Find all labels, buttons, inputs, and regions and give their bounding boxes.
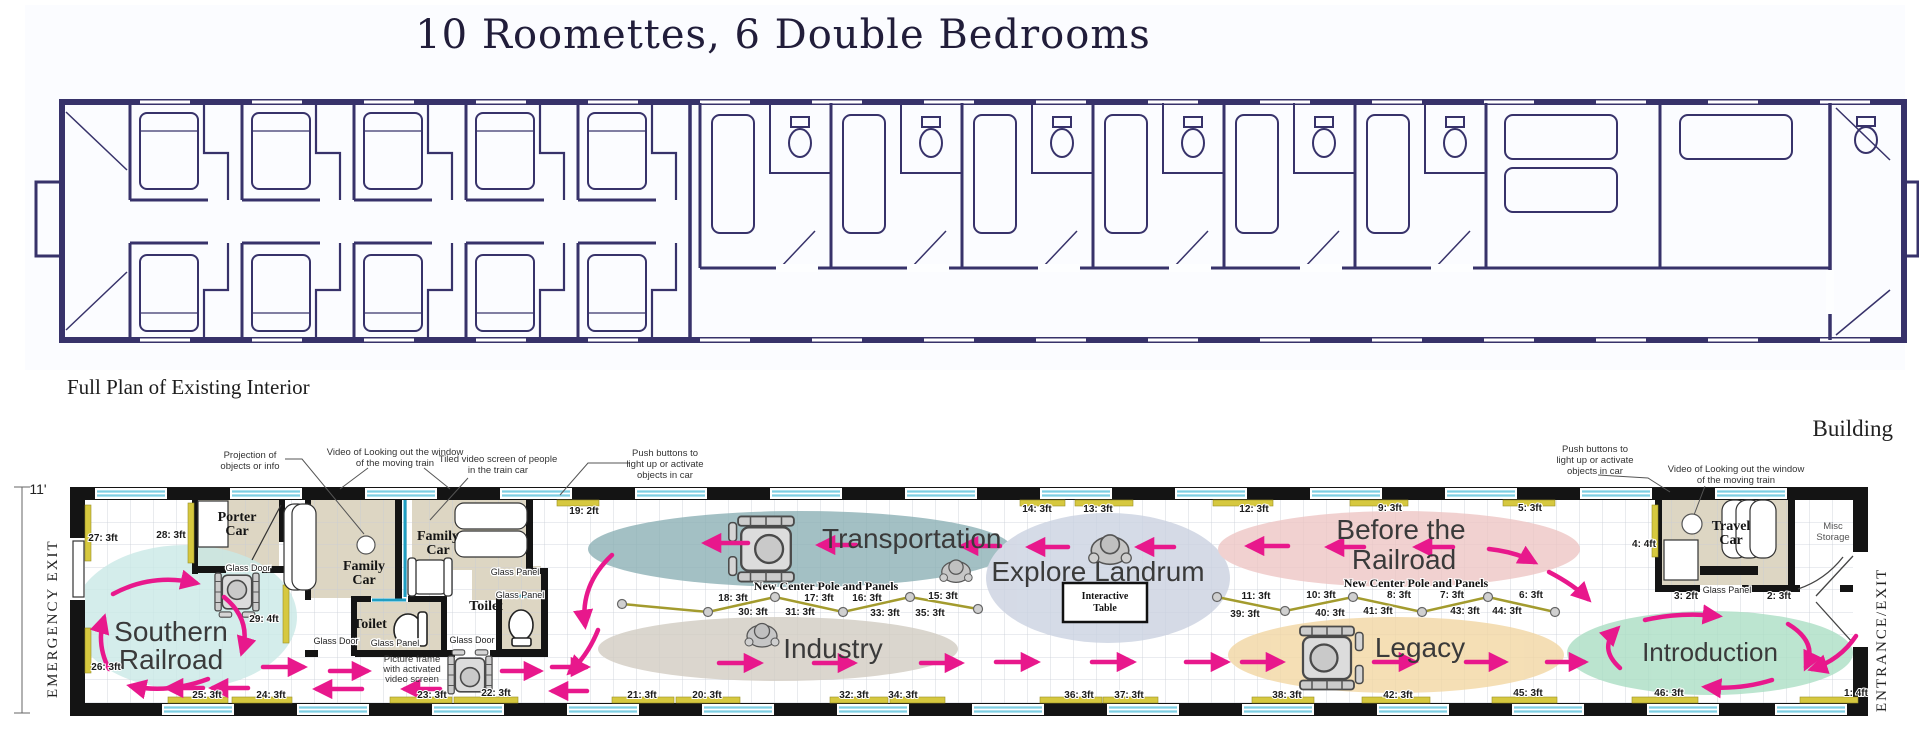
glass-door-label: Glass Door <box>313 636 358 646</box>
measurement-31: 31: 3ft <box>785 607 815 618</box>
train-car-plans: 10 Roomettes, 6 Double Bedrooms Full Pla… <box>0 0 1919 739</box>
height-dimension-line <box>14 487 30 713</box>
measurement-4: 4: 4ft <box>1632 539 1657 550</box>
measurement-16: 16: 3ft <box>852 593 882 604</box>
measurement-28: 28: 3ft <box>156 530 186 541</box>
measurement-23: 23: 3ft <box>417 690 447 701</box>
measurement-33: 33: 3ft <box>870 608 900 619</box>
zone-label-southern: Southern <box>114 616 228 647</box>
svg-text:of the moving train: of the moving train <box>1697 475 1775 486</box>
armchair <box>408 558 452 596</box>
porter-car-label: Porter <box>218 510 257 525</box>
projection-point <box>357 536 375 554</box>
zone-label-transportation: Transportation <box>822 523 1002 554</box>
center-pole-label: New Center Pole and Panels <box>1344 576 1489 590</box>
glass-panel-label: Glass Panel <box>371 638 420 648</box>
building-label: Building <box>1812 416 1893 441</box>
measurement-30: 30: 3ft <box>738 607 768 618</box>
svg-text:Interactive: Interactive <box>1082 591 1129 602</box>
svg-text:Car: Car <box>225 524 248 539</box>
svg-text:objects in car: objects in car <box>1567 466 1623 477</box>
glass-door-label: Glass Door <box>225 563 270 573</box>
entrance-door <box>1853 552 1868 647</box>
glass-panel-label: Glass Panel <box>496 590 545 600</box>
svg-text:of the moving train: of the moving train <box>356 458 434 469</box>
measurement-19: 19: 2ft <box>569 506 599 517</box>
zone-label-introduction: Introduction <box>1642 637 1778 667</box>
family-car-label: Family <box>343 559 385 574</box>
entrance-exit-label: ENTRANCE/EXIT <box>1874 568 1890 712</box>
measurement-6: 6: 3ft <box>1519 590 1544 601</box>
measurement-38: 38: 3ft <box>1272 690 1302 701</box>
measurement-10: 10: 3ft <box>1306 590 1336 601</box>
measurement-9: 9: 3ft <box>1378 503 1403 514</box>
push-buttons-annotation: Push buttons to <box>632 448 698 459</box>
measurement-41: 41: 3ft <box>1363 606 1393 617</box>
measurement-42: 42: 3ft <box>1383 690 1413 701</box>
measurement-18: 18: 3ft <box>718 593 748 604</box>
measurement-40: 40: 3ft <box>1315 608 1345 619</box>
svg-text:Railroad: Railroad <box>1352 544 1456 575</box>
plan-sheet: 10 Roomettes, 6 Double Bedrooms Full Pla… <box>0 0 1919 739</box>
measurement-5: 5: 3ft <box>1518 503 1543 514</box>
svg-text:Car: Car <box>352 573 375 588</box>
video-annotation: Video of Looking out the window <box>1668 464 1805 475</box>
measurement-14: 14: 3ft <box>1022 504 1052 515</box>
measurement-36: 36: 3ft <box>1064 690 1094 701</box>
measurement-37: 37: 3ft <box>1114 690 1144 701</box>
zone-label-before: Before the <box>1336 514 1465 545</box>
svg-text:video screen: video screen <box>385 674 439 685</box>
measurement-35: 35: 3ft <box>915 608 945 619</box>
svg-text:in the train car: in the train car <box>468 465 528 476</box>
measurement-26: 26: 3ft <box>91 662 121 673</box>
measurement-12: 12: 3ft <box>1239 504 1269 515</box>
travel-car-label: Travel <box>1712 519 1751 534</box>
measurement-24: 24: 3ft <box>256 690 286 701</box>
svg-text:Car: Car <box>1719 533 1742 548</box>
family-car-label: Family <box>417 529 459 544</box>
measurement-7: 7: 3ft <box>1440 590 1465 601</box>
svg-text:Car: Car <box>426 543 449 558</box>
zone-label-legacy: Legacy <box>1375 632 1465 663</box>
video-point <box>1682 514 1702 534</box>
measurement-39: 39: 3ft <box>1230 609 1260 620</box>
tiled-screen-annotation: Tiled video screen of people <box>439 454 557 465</box>
measurement-17: 17: 3ft <box>804 593 834 604</box>
svg-text:objects in car: objects in car <box>637 470 693 481</box>
measurement-45: 45: 3ft <box>1513 688 1543 699</box>
measurement-21: 21: 3ft <box>627 690 657 701</box>
measurement-43: 43: 3ft <box>1450 606 1480 617</box>
measurement-11: 11: 3ft <box>1242 591 1272 602</box>
measurement-8: 8: 3ft <box>1387 590 1412 601</box>
zone-industry <box>598 617 958 681</box>
sheet-title: 10 Roomettes, 6 Double Bedrooms <box>415 12 1151 58</box>
measurement-20: 20: 3ft <box>692 690 722 701</box>
measurement-29: 29: 4ft <box>249 614 279 625</box>
glass-panel-label: Glass Panel <box>1703 585 1752 595</box>
emergency-exit-label: EMERGENCY EXIT <box>45 539 61 698</box>
toilet-label: Toilet <box>353 617 387 632</box>
toilet-fixture-2 <box>509 610 533 646</box>
measurement-25: 25: 3ft <box>192 690 222 701</box>
zone-label-industry: Industry <box>783 633 883 664</box>
svg-text:Storage: Storage <box>1816 532 1849 543</box>
measurement-3: 3: 2ft <box>1674 591 1699 602</box>
measurement-15: 15: 3ft <box>928 591 958 602</box>
zone-label-explore: Explore Landrum <box>991 556 1204 587</box>
svg-text:objects or info: objects or info <box>220 461 279 472</box>
push-buttons-annotation: Push buttons to <box>1562 444 1628 455</box>
svg-text:Railroad: Railroad <box>119 644 223 675</box>
measurement-13: 13: 3ft <box>1083 504 1113 515</box>
measurement-1: 1: 4ft <box>1844 688 1869 699</box>
projection-annotation: Projection of <box>224 450 277 461</box>
measurement-2: 2: 3ft <box>1767 591 1792 602</box>
glass-panel-label: Glass Panel <box>491 567 540 577</box>
glass-door-label: Glass Door <box>449 635 494 645</box>
center-pole-label: New Center Pole and Panels <box>754 579 899 593</box>
plan-caption: Full Plan of Existing Interior <box>67 375 310 399</box>
toilet-label: Toilet <box>469 599 503 614</box>
measurement-32: 32: 3ft <box>839 690 869 701</box>
measurement-27: 27: 3ft <box>88 533 118 544</box>
height-dimension: 11' <box>29 481 46 497</box>
svg-text:Table: Table <box>1093 603 1117 614</box>
svg-text:light up or activate: light up or activate <box>626 459 703 470</box>
measurement-46: 46: 3ft <box>1654 688 1684 699</box>
existing-interior-plan: 10 Roomettes, 6 Double Bedrooms Full Pla… <box>25 5 1918 399</box>
svg-text:light up or activate: light up or activate <box>1556 455 1633 466</box>
interactive-table: Interactive Table <box>1063 583 1147 622</box>
misc-storage-label: Misc <box>1823 521 1843 532</box>
measurement-34: 34: 3ft <box>888 690 918 701</box>
exhibit-plan: 11' EMERGENCY EXIT ENTRANCE/EXIT <box>14 444 1890 716</box>
measurement-44: 44: 3ft <box>1492 606 1522 617</box>
measurement-22: 22: 3ft <box>481 688 511 699</box>
